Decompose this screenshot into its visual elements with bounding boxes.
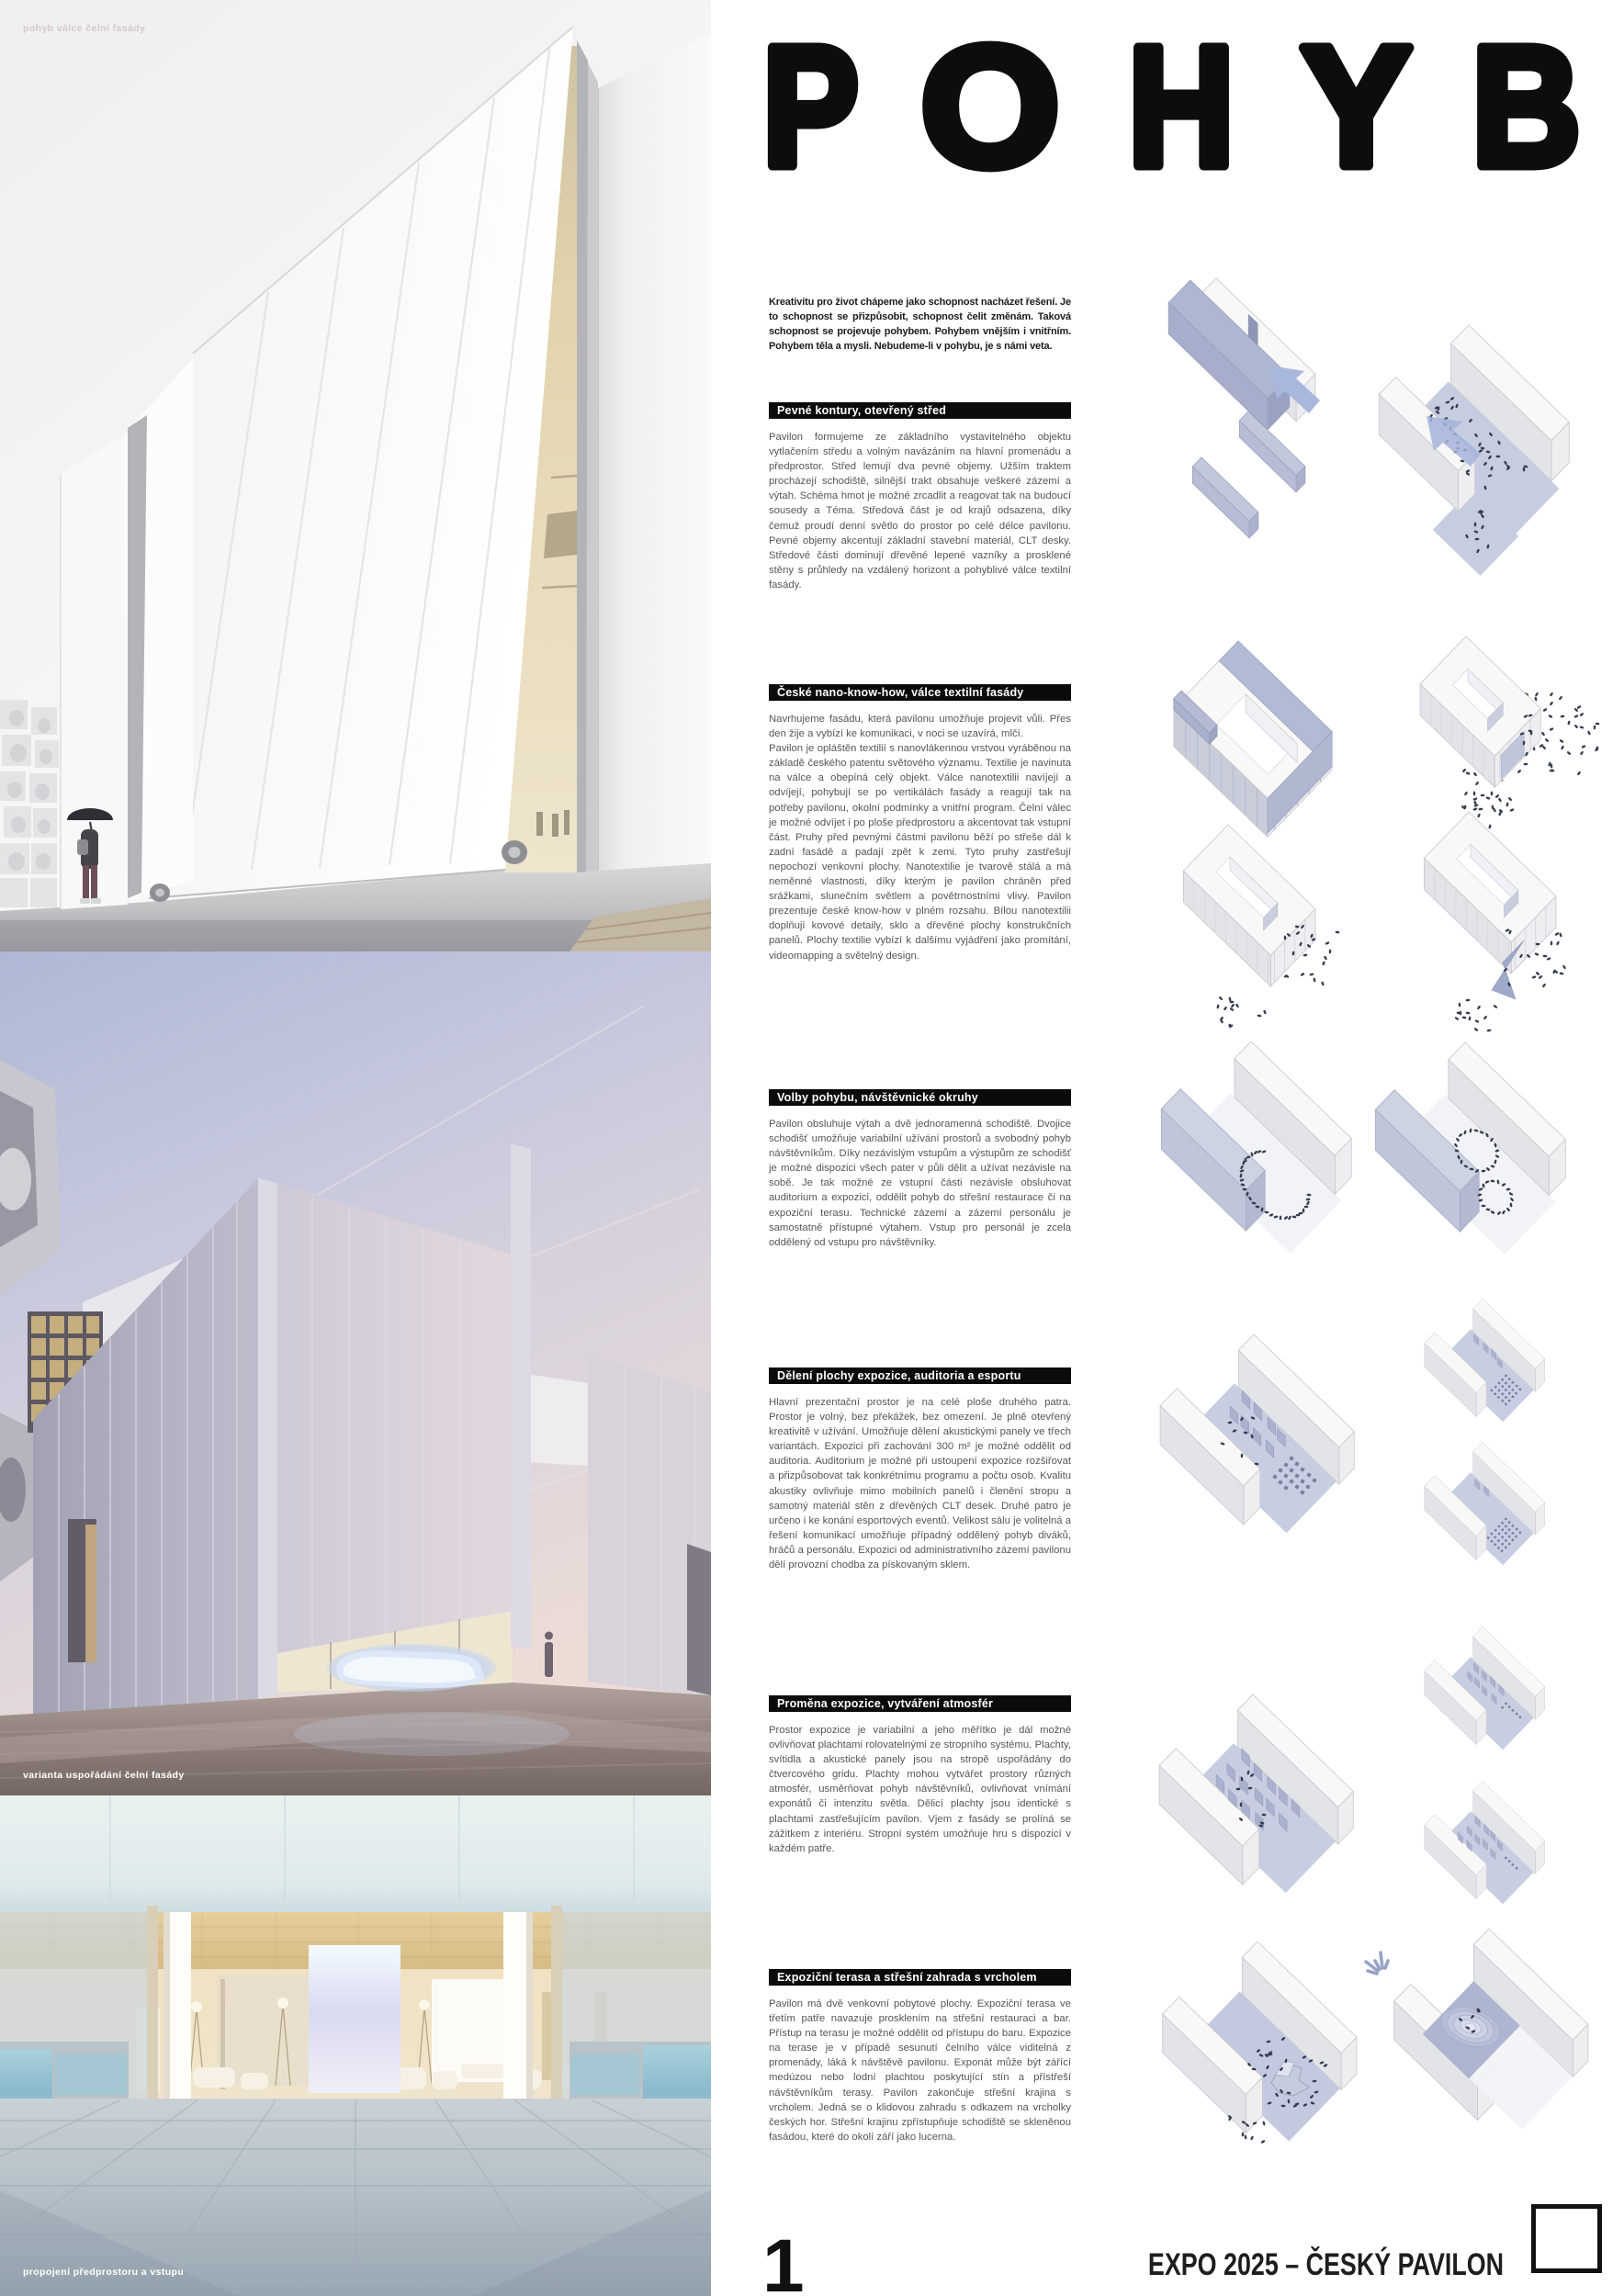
svg-text:P: P bbox=[762, 12, 859, 202]
svg-text:H: H bbox=[1128, 12, 1235, 202]
svg-text:Y: Y bbox=[1301, 12, 1412, 202]
svg-text:B: B bbox=[1472, 12, 1581, 202]
svg-text:varianta uspořádání čelní fasá: varianta uspořádání čelní fasády bbox=[23, 1770, 185, 1781]
svg-text:O: O bbox=[920, 12, 1060, 202]
svg-text:propojení předprostoru a vstup: propojení předprostoru a vstupu bbox=[23, 2267, 184, 2278]
